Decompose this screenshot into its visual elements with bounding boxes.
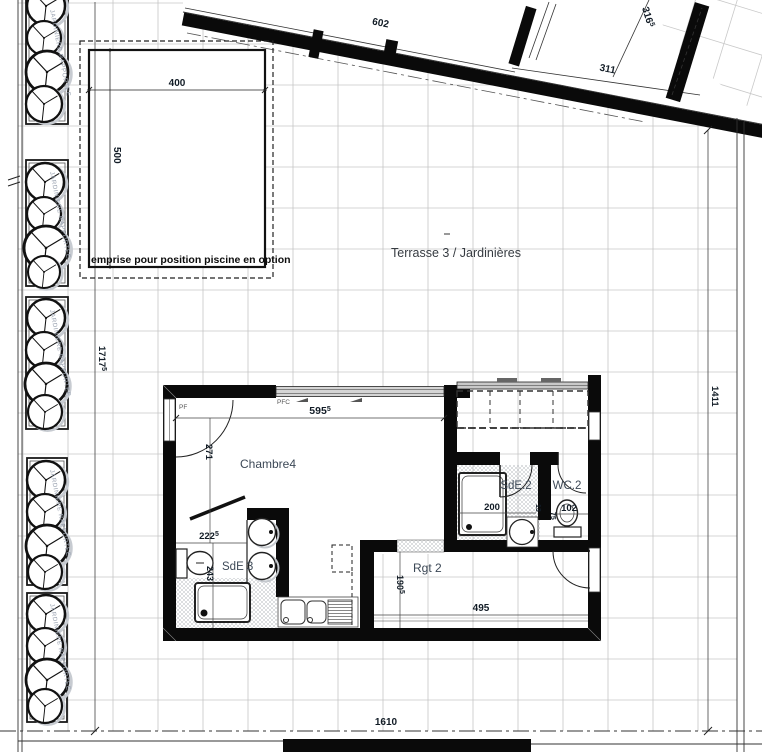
planter-column: JARDINIERE RAPPORTEE JARDINIERE RAPPORTE… [24, 0, 72, 725]
planter-box: JARDINIERE RAPPORTEE [24, 160, 72, 290]
terrace-label-group: Terrasse 3 / Jardinières [391, 234, 521, 260]
dim-13-label: 13 [534, 504, 541, 512]
dim-200-label: 200 [484, 502, 500, 513]
terrace-label: Terrasse 3 / Jardinières [391, 246, 521, 260]
planter-box: JARDINIERE RAPPORTEE [26, 458, 72, 591]
dim-495-label: 495 [473, 603, 490, 614]
background-masks [89, 0, 762, 628]
dim-1717-label: 17175 [96, 346, 107, 371]
dim-271-label: 271 [203, 444, 214, 461]
canopy-dashed-outline [457, 391, 588, 428]
glazed-band [457, 378, 588, 389]
dim-1411-label: 1411 [709, 386, 720, 407]
floor-plan: 602 311 3165 17175 1411 1610 400 500 [0, 0, 762, 752]
toilet-tank-3 [176, 549, 187, 578]
room-label-wc2: WC.2 [553, 480, 582, 492]
wc2-fixtures [554, 452, 586, 537]
planter-box: JARDINIERE RAPPORTEE [26, 0, 72, 124]
dim-102-label: 102 [561, 503, 577, 514]
window-right [589, 412, 600, 440]
dim-400-label: 400 [169, 78, 186, 89]
dim-190-label: 1905 [395, 575, 405, 594]
planter-box: JARDINIERE RAPPORTEE [25, 297, 72, 431]
room-label-chambre4: Chambre4 [240, 457, 296, 471]
toilet-tank-2 [554, 527, 581, 537]
dim-500-label: 500 [111, 147, 122, 164]
door-rgt2 [553, 548, 600, 592]
low-wall-hatched [397, 540, 444, 552]
pool-option-label: emprise pour position piscine en option [91, 254, 291, 266]
dim-75-label: 75 [549, 512, 556, 520]
window-pf-label: PF [179, 404, 187, 411]
room-label-sde2: SdE.2 [500, 480, 531, 492]
room-label-rgt2: Rgt 2 [413, 561, 442, 575]
dim-243-label: 243 [205, 566, 215, 581]
dim-1610-label: 1610 [375, 717, 398, 728]
window-pfc-label: PFC [277, 399, 290, 406]
room-label-sde3: SdE 3 [222, 561, 253, 573]
planter-box: JARDINIERE RAPPORTEE [26, 593, 72, 725]
